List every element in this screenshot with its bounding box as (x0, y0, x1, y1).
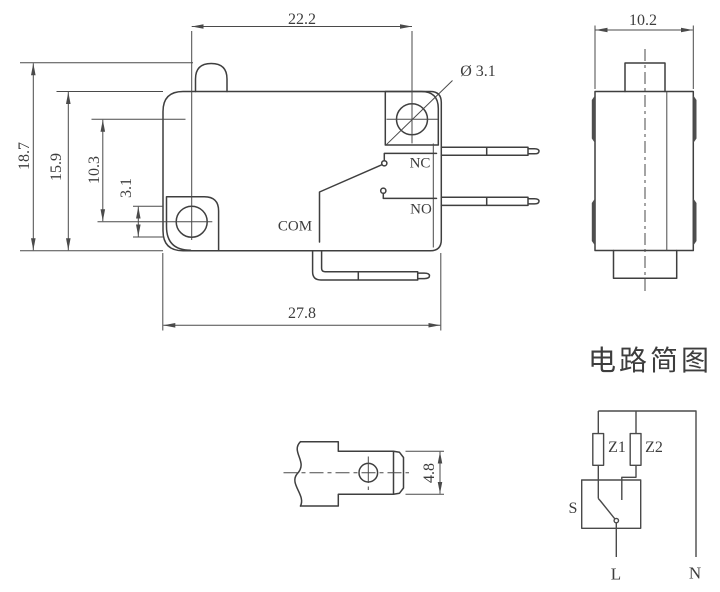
side-rib-left-bottom (592, 199, 595, 246)
dim-text-side-width: 10.2 (629, 13, 657, 29)
terminal-label-no: NO (410, 203, 432, 218)
side-rib-left-top (592, 96, 595, 144)
dim-text-hole-dia-left: 3.1 (119, 178, 135, 198)
terminal-label-com: COM (278, 220, 312, 235)
mounting-boss-bottom-left (167, 197, 219, 251)
circuit-label-l: L (611, 566, 621, 583)
com-lever (320, 165, 383, 242)
hole-diameter-leader (386, 81, 453, 146)
side-extension-lines (595, 26, 693, 90)
impedance-z1-box (593, 434, 604, 466)
switch-lever (598, 499, 614, 519)
technical-drawing-sheet: 22.2 Ø 3.1 18.7 15.9 10.3 3.1 27.8 NC NO… (0, 0, 720, 592)
circuit-label-n: N (689, 565, 701, 582)
dim-text-overall-height: 18.7 (17, 142, 33, 170)
terminal-outline (301, 442, 404, 506)
extension-lines (20, 31, 441, 331)
front-view (98, 64, 540, 281)
dim-text-hole-offset: 10.3 (87, 156, 103, 184)
switch-box (582, 480, 641, 528)
dim-text-body-width: 27.8 (288, 306, 316, 322)
dim-text-body-height: 15.9 (49, 153, 65, 181)
no-terminal-blade (441, 197, 539, 205)
circuit-title: 电路简图 (588, 348, 712, 376)
side-view (592, 26, 697, 293)
circuit-label-s: S (569, 501, 578, 517)
dim-text-hole-diameter: Ø 3.1 (460, 64, 496, 80)
switch-contact-point (614, 518, 618, 522)
impedance-z2-box (630, 434, 641, 466)
circuit-label-z1: Z1 (608, 440, 626, 456)
dim-text-blade-width: 4.8 (422, 463, 438, 483)
terminal-label-nc: NC (410, 157, 431, 172)
side-rib-right-bottom (693, 199, 696, 246)
circuit-label-z2: Z2 (645, 440, 663, 456)
no-contact-point (381, 188, 386, 193)
nc-terminal-blade (441, 147, 539, 155)
drawing-linework (0, 0, 720, 592)
plunger-button (196, 64, 228, 92)
circuit-wires (598, 411, 696, 557)
front-view-dimensions (20, 27, 453, 331)
terminal-break-line (295, 442, 302, 506)
terminal-detail-view (284, 442, 445, 506)
dim-text-hole-spacing: 22.2 (288, 12, 316, 28)
side-rib-right-top (693, 96, 696, 144)
com-terminal-blade (313, 251, 430, 280)
circuit-diagram (582, 411, 696, 557)
side-body-outline (595, 92, 693, 251)
no-contact-line (383, 193, 436, 198)
